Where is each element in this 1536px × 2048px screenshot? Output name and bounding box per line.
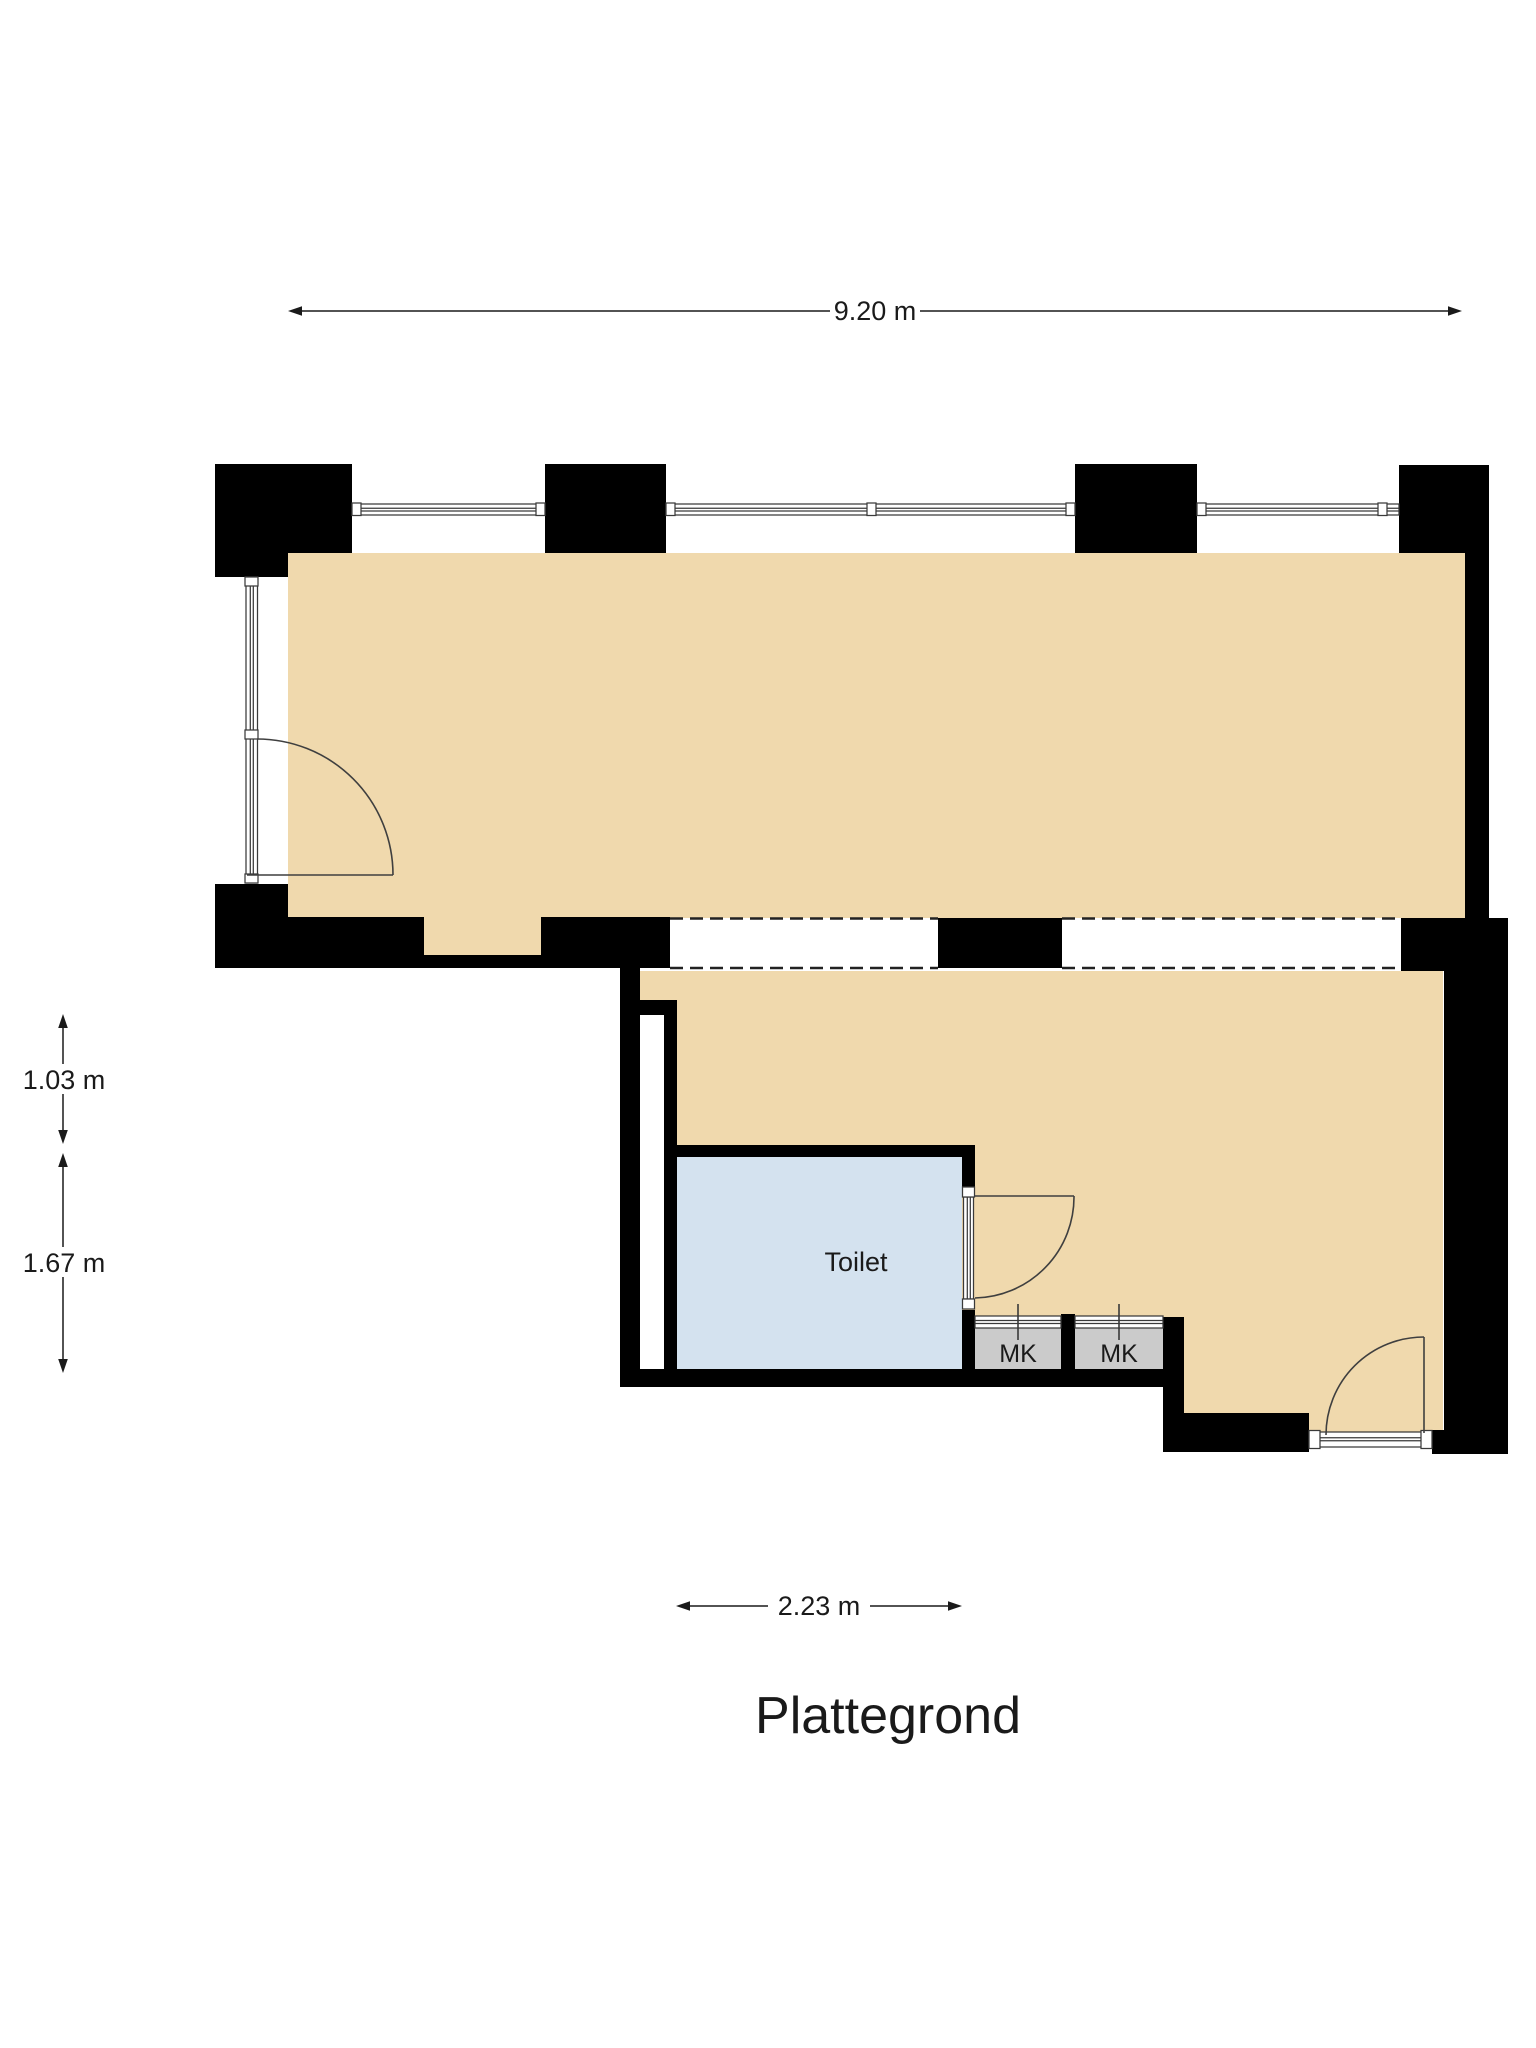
svg-text:1.03 m: 1.03 m: [23, 1065, 106, 1095]
svg-text:MK: MK: [1100, 1340, 1138, 1368]
svg-text:Toilet: Toilet: [824, 1247, 888, 1277]
svg-text:MK: MK: [999, 1340, 1037, 1368]
svg-text:9.20 m: 9.20 m: [834, 296, 917, 326]
svg-text:Plattegrond: Plattegrond: [755, 1687, 1021, 1745]
svg-text:2.23 m: 2.23 m: [778, 1591, 861, 1621]
svg-text:1.67 m: 1.67 m: [23, 1248, 106, 1278]
